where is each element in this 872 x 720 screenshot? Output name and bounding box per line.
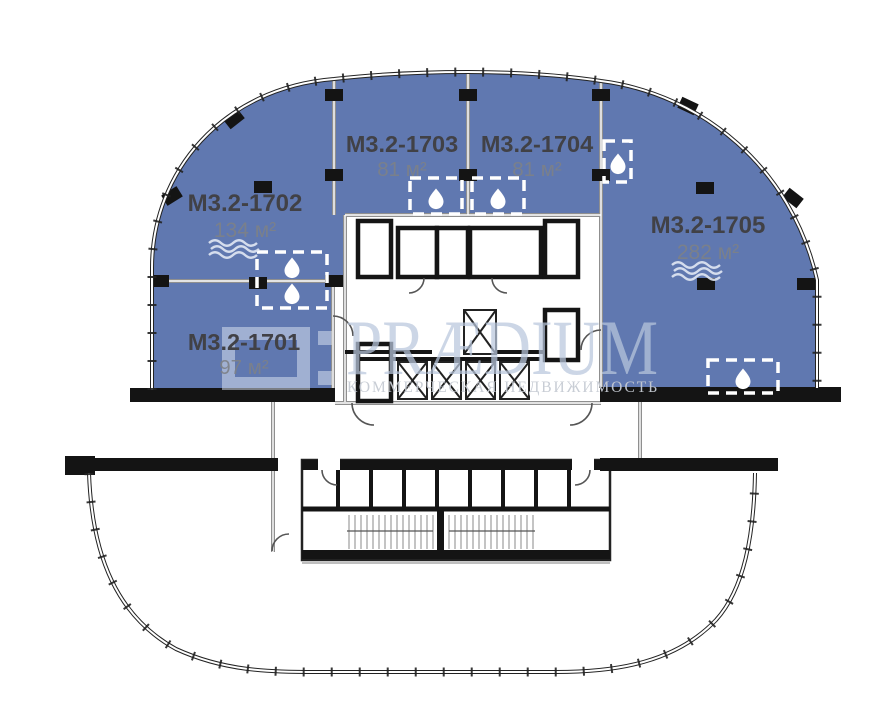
floorplan-canvas: PRÆDIUM КОММЕРЧЕСКАЯ НЕДВИЖИМОСТЬ М3.2-1… bbox=[0, 0, 872, 720]
unit-name: М3.2-1704 bbox=[481, 131, 593, 157]
watermark-tagline: КОММЕРЧЕСКАЯ НЕДВИЖИМОСТЬ bbox=[347, 379, 657, 396]
unit-area: 134 м² bbox=[214, 219, 276, 242]
unit-area: 97 м² bbox=[219, 356, 269, 379]
unit-area: 81 м² bbox=[377, 158, 427, 181]
floor-plan: PRÆDIUM КОММЕРЧЕСКАЯ НЕДВИЖИМОСТЬ М3.2-1… bbox=[0, 0, 872, 720]
unit-name: М3.2-1702 bbox=[188, 190, 303, 217]
unit-name: М3.2-1703 bbox=[346, 131, 458, 157]
unit-area: 81 м² bbox=[512, 158, 562, 181]
watermark-brand: PRÆDIUM bbox=[346, 304, 658, 391]
unit-name: М3.2-1701 bbox=[188, 329, 300, 355]
lower-core bbox=[302, 458, 610, 563]
unit-name: М3.2-1705 bbox=[651, 212, 766, 239]
unit-area: 282 м² bbox=[677, 241, 739, 264]
